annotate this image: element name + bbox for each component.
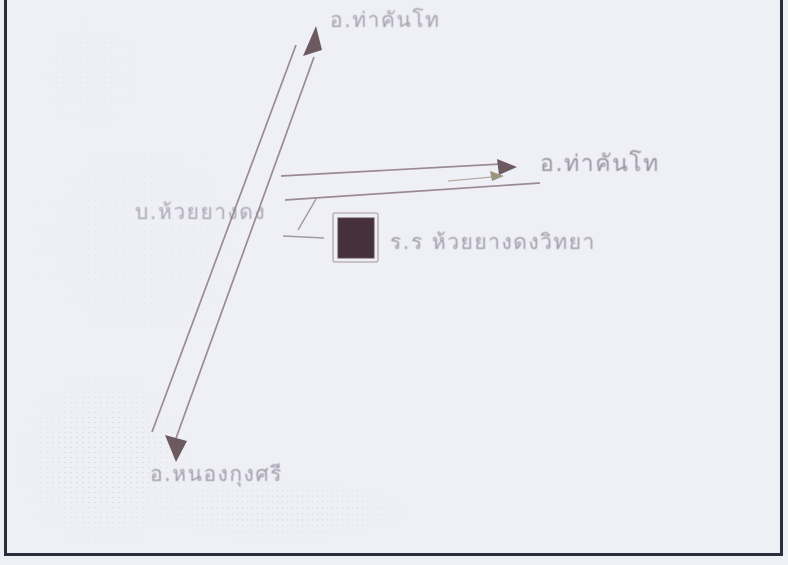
main-road-line-left (152, 45, 296, 432)
branch-road-line-lower (285, 183, 540, 200)
label-top-destination: อ.ท่าคันโท (330, 4, 440, 37)
building-icon (338, 218, 374, 258)
main-road (152, 26, 322, 462)
arrow-east-icon (497, 159, 517, 175)
school-access-path (283, 199, 324, 238)
branch-road (281, 159, 540, 200)
map-drawing (0, 0, 788, 565)
access-path-segment (298, 199, 316, 230)
label-right-destination: อ.ท่าคันโท (540, 146, 660, 182)
school-building (333, 213, 378, 262)
branch-road-line-upper (281, 164, 501, 176)
label-school: ร.ร ห้วยยางดงวิทยา (390, 226, 596, 259)
label-village: บ.ห้วยยางดง (135, 196, 266, 229)
scanned-map-page: อ.ท่าคันโท อ.ท่าคันโท บ.ห้วยยางดง ร.ร ห้… (0, 0, 788, 565)
main-road-line-right (175, 57, 314, 441)
arrow-north-icon (303, 26, 322, 56)
label-bottom-destination: อ.หนองกุงศรี (150, 458, 283, 491)
branch-road-inner-stroke (448, 177, 492, 181)
access-path-segment (283, 236, 324, 238)
